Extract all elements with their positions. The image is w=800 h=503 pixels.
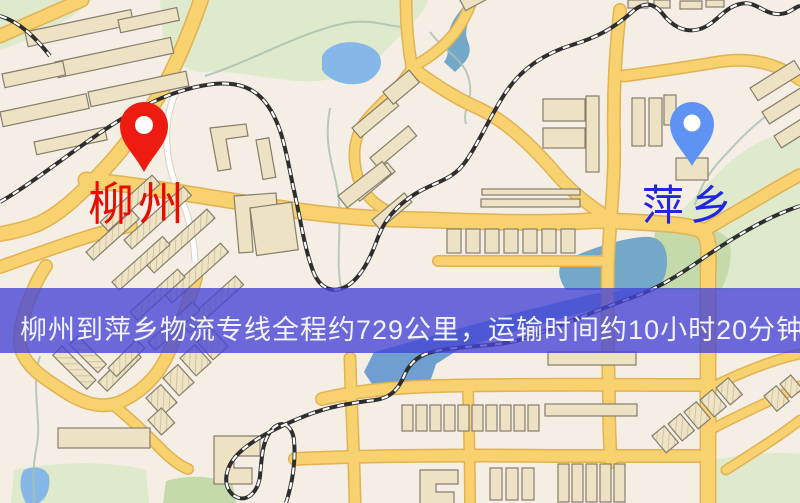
map-screenshot: 柳州 萍乡 柳州到萍乡物流专线全程约729公里，运输时间约10小时20分钟. (0, 0, 800, 503)
route-info-text: 柳州到萍乡物流专线全程约729公里，运输时间约10小时20分钟. (20, 315, 800, 345)
destination-city-label: 萍乡 (642, 185, 738, 227)
pin-hole (684, 115, 701, 132)
pin-hole (135, 116, 153, 134)
pond (322, 42, 381, 84)
route-info-banner: 柳州到萍乡物流专线全程约729公里，运输时间约10小时20分钟. (0, 288, 800, 353)
map-canvas (0, 0, 800, 503)
origin-city-label: 柳州 (88, 181, 188, 227)
